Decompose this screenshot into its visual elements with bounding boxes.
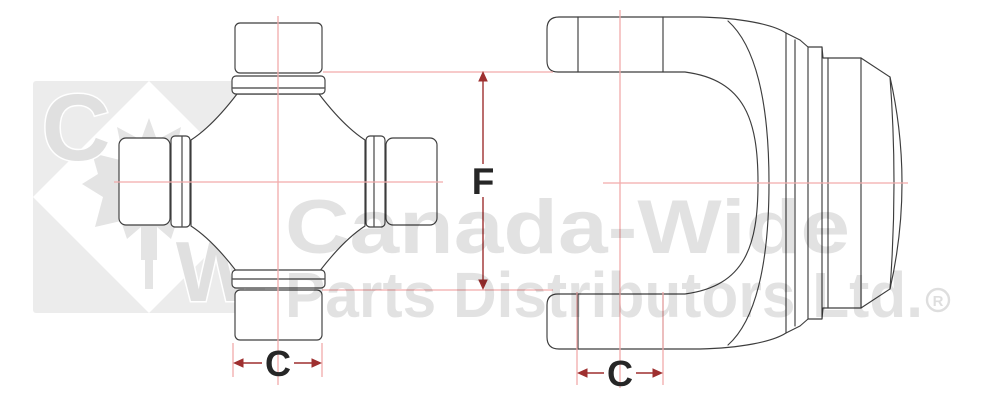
c-cross-dimension-label: C: [265, 343, 291, 384]
watermark-text: Canada-Wide Parts Distributors Ltd. R: [285, 185, 949, 331]
diagram-canvas: C W: [0, 0, 1000, 402]
watermark-line2: Parts Distributors Ltd.: [285, 259, 923, 331]
c-yoke-arrow-left-icon: [577, 368, 588, 378]
watermark-line1: Canada-Wide: [285, 185, 850, 270]
registered-letter: R: [933, 293, 944, 310]
c-cross-arrow-right-icon: [312, 358, 323, 368]
dimension-C-yoke: C: [577, 353, 663, 394]
c-cross-arrow-left-icon: [233, 358, 244, 368]
parts-diagram: C W: [0, 0, 1000, 402]
c-yoke-arrow-right-icon: [653, 368, 664, 378]
dimension-C-cross: C: [233, 343, 322, 384]
c-yoke-dimension-label: C: [607, 353, 633, 394]
logo-letter-c: C: [42, 75, 111, 181]
registered-trademark-icon: R: [927, 289, 949, 311]
